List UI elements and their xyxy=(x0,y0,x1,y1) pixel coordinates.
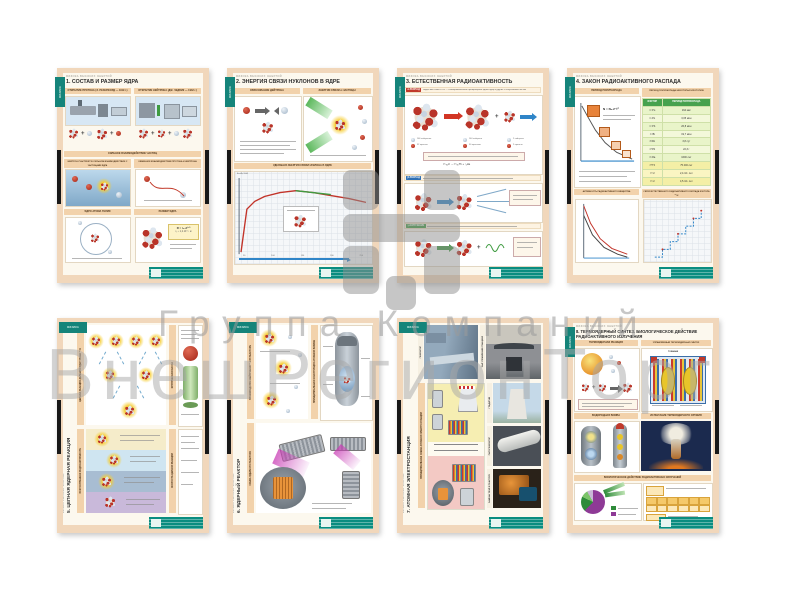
edge-bar-left xyxy=(57,150,61,204)
cylinder xyxy=(183,366,198,400)
publisher-logo xyxy=(659,267,713,279)
bomb-casing-2 xyxy=(613,424,627,468)
gamma-diagram: + xyxy=(404,231,543,267)
thermonuclear-reaction-diagram: + xyxy=(574,348,640,412)
turbine-coil-2 xyxy=(452,464,476,482)
poster-title-line2: РАДИОАКТИВНОГО ИЗЛУЧЕНИЯ xyxy=(576,334,713,339)
deuteron-diagram xyxy=(234,96,302,162)
publisher-logo xyxy=(319,517,373,529)
publisher-logo xyxy=(659,517,713,529)
exchange-interaction-diagram xyxy=(135,169,201,207)
tokamak-diagram: ТОКАМАК xyxy=(641,348,713,412)
section-neutron-production: ПРОИЗВОДСТВО НЕЙТРОНОВ ²³⁵U В РЕАКТОРЕ xyxy=(247,325,254,419)
table-value-row xyxy=(646,505,710,512)
table-header-row xyxy=(646,497,710,505)
publisher-logo xyxy=(149,267,203,279)
turbine-coil-1 xyxy=(448,420,468,435)
pion-exchange-curve xyxy=(148,178,188,202)
photo-label-control-room: ЗАЛ УПРАВЛЕНИЯ СТАНЦИЕЙ xyxy=(480,325,485,379)
edge-bar-right xyxy=(205,400,209,454)
section-reaction-speed: СКОРОСТЬ ЦЕПНОЙ РЕАКЦИИ xyxy=(169,429,176,513)
radius-formula-box: R = r₀·A¹ᐟ³ r₀ ≈ 1,2·10⁻¹⁵ м xyxy=(168,224,199,240)
helium-atom-diagram xyxy=(65,217,131,263)
alpha-binding-diagram xyxy=(303,96,373,162)
publisher-logo xyxy=(489,267,543,279)
poster-title: 4. ЗАКОН РАДИОАКТИВНОГО РАСПАДА xyxy=(576,79,713,85)
series-label: ФИЗИКА ВЫСОКИХ ЭНЕРГИЙ xyxy=(403,343,405,513)
photo-cooling-tower xyxy=(493,383,541,423)
section-halflife: ПЕРИОД ПОЛУРАСПАДА xyxy=(574,88,639,94)
photo-fuel-replacement xyxy=(493,469,541,508)
physics-series-tab: ФИЗИКА xyxy=(399,322,427,333)
alpha-decay-definition: α-РАСПАД РАДИОАКТИВНОСТЬ — самопроизволь… xyxy=(404,87,541,93)
binding-energy-chart: Eсв/A, МэВ 50 100 150 200 250 xyxy=(234,171,373,265)
photo-steam-generator xyxy=(493,426,541,466)
publisher-logo xyxy=(319,267,373,279)
uranium-sphere xyxy=(183,346,198,361)
neutron-apparatus xyxy=(135,96,201,126)
reactor-schema-diagram xyxy=(256,423,371,513)
nucleus-size-diagram: R = r₀·A¹ᐟ³ r₀ ≈ 1,2·10⁻¹⁵ м xyxy=(135,217,201,263)
photo-label-gradirnya: ГРАДИРНЯ xyxy=(487,383,492,423)
section-neutron: ОТКРЫТИЕ НЕЙТРОНА (ДЖ. ЧЕДВИК — 1932 г.) xyxy=(134,88,201,94)
radiation-pie-chart xyxy=(574,483,642,521)
section-hydrogen-bomb: ВОДОРОДНАЯ БОМБА xyxy=(574,413,638,419)
atomic-bomb-diagram xyxy=(320,325,373,421)
photo-control-room xyxy=(486,325,541,379)
edge-bar-left xyxy=(227,150,231,204)
alpha-equation: ²³⁸₉₂U → ²³⁴₉₀Th + ⁴₂He xyxy=(443,163,470,166)
decay-formula: N = N₀·2⁻ᵗ⁄ᵀ xyxy=(603,107,619,111)
isotope-halflife-table: ИЗОТОППЕРИОД ПОЛУРАСПАДА ²¹⁴Po164 мкс ²¹… xyxy=(642,98,711,186)
reaction-speed-formulas xyxy=(178,429,203,515)
chain-reaction-tree xyxy=(86,325,166,425)
section-proton: ОТКРЫТИЕ ПРОТОНА (Э. РЕЗЕРФОРД — 1919 г.… xyxy=(64,88,131,94)
section-decay-series: СЕРИЯ ЕСТЕСТВЕННОГО РАДИОАКТИВНОГО РАСПА… xyxy=(642,189,711,198)
section-strong-interaction: СИЛЬНОЕ ВЗАИМОДЕЙСТВИЕ ЧАСТИЦ xyxy=(64,151,201,157)
tokamak-label: ТОКАМАК xyxy=(668,351,678,353)
artificial-radioactivity-bands xyxy=(86,429,166,513)
publisher-logo xyxy=(149,517,203,529)
nucleus-inset xyxy=(283,206,319,232)
cooling-tower-sketch xyxy=(458,388,478,412)
poster-title: 5. ЦЕПНАЯ ЯДЕРНАЯ РЕАКЦИЯ xyxy=(67,343,72,513)
physics-series-tab: ФИЗИКА xyxy=(565,77,575,107)
section-alpha: ЭНЕРГИЯ СВЯЗИ α-ЧАСТИЦЫ xyxy=(303,88,371,94)
beta-decay-diagram xyxy=(404,183,543,223)
fuel-cylinder-vertical xyxy=(342,471,360,499)
poster-title: 6. ЯДЕРНЫЙ РЕАКТОР xyxy=(237,363,242,513)
pie-graphic xyxy=(581,490,605,514)
activity-curves xyxy=(579,202,633,260)
poster-3-radioaktivnost: ФИЗИКА ФИЗИКА ВЫСОКИХ ЭНЕРГИЙ 3. ЕСТЕСТВ… xyxy=(397,68,549,283)
reactor-oval xyxy=(432,480,454,506)
photo-mushroom-cloud xyxy=(641,421,711,471)
photo-generator xyxy=(424,325,478,379)
section-weapon-test: ИСПЫТАНИЕ ТЕРМОЯДЕРНОГО ОРУЖИЯ xyxy=(641,413,711,419)
poster-7-aes: ФИЗИКА ФИЗИКА ВЫСОКИХ ЭНЕРГИЙ 7. АТОМНАЯ… xyxy=(397,318,549,533)
poster-1-sostav-yadra: ФИЗИКА ФИЗИКА ВЫСОКИХ ЭНЕРГИЙ 1. СОСТАВ … xyxy=(57,68,209,283)
edge-bar-left xyxy=(397,150,401,204)
physics-series-tab: ФИЗИКА xyxy=(395,77,405,107)
x-axis xyxy=(239,258,349,260)
section-biological-effect: БИОЛОГИЧЕСКОЕ ДЕЙСТВИЕ РАДИОАКТИВНЫХ ИЗЛ… xyxy=(574,475,711,481)
sample-square xyxy=(587,105,600,117)
tokamak-cross-section xyxy=(650,356,706,404)
edge-bar-right xyxy=(545,400,549,454)
edge-bar-right xyxy=(715,400,719,454)
poster-6-yaderny-reaktor: ФИЗИКА ФИЗИКА ВЫСОКИХ ЭНЕРГИЙ 6. ЯДЕРНЫЙ… xyxy=(227,318,379,533)
edge-bar-right xyxy=(375,150,379,204)
section-aes-schema: ПРИНЦИПИАЛЬНАЯ СХЕМА АТОМНОЙ ЭЛЕКТРОСТАН… xyxy=(418,383,425,508)
photon-wave xyxy=(485,240,509,256)
subsection-strong-a: НЕЙТРОН УЧАСТВУЕТ В СИЛЬНОМ ВЗАИМОДЕЙСТВ… xyxy=(64,159,131,168)
section-binding-graph: УДЕЛЬНАЯ ЭНЕРГИЯ СВЯЗИ НУКЛОНА В ЯДРЕ xyxy=(234,163,371,169)
alpha-decay-diagram: + 146 нейтронов 92 протона 144 нейтрона … xyxy=(404,95,543,175)
physics-series-tab: ФИЗИКА xyxy=(59,322,87,333)
dose-table xyxy=(643,483,713,521)
subsection-strong-b: ОБМЕННОЕ ВЗАИМОДЕЙСТВИЕ ПРОТОНА И НЕЙТРО… xyxy=(134,159,201,168)
edge-bar-right xyxy=(205,150,209,204)
strong-interaction-diagram xyxy=(65,169,131,207)
activity-chart xyxy=(575,199,639,263)
edge-bar-left xyxy=(567,150,571,204)
decay-series-stairs xyxy=(648,201,708,261)
section-size: РАЗМЕР ЯДРА xyxy=(134,209,201,215)
reaction-formula-box xyxy=(578,399,638,410)
reactor-vessel xyxy=(260,467,306,509)
gamma-definition: γ-ИЗЛУЧЕНИЕ xyxy=(404,223,541,229)
edge-bar-right xyxy=(545,150,549,204)
poster-4-zakon-raspada: ФИЗИКА ФИЗИКА ВЫСОКИХ ЭНЕРГИЙ 4. ЗАКОН Р… xyxy=(567,68,719,283)
neutron-production-diagram xyxy=(256,325,308,419)
section-critical-mass: КРИТИЧЕСКАЯ МАССА xyxy=(169,325,176,425)
edge-bar-left xyxy=(567,400,571,454)
x-tick-labels: 50 100 150 200 250 xyxy=(243,255,363,257)
hydrogen-bomb-diagrams xyxy=(574,421,640,473)
poster-5-cepnaya-reakciya: ФИЗИКА ФИЗИКА ВЫСОКИХ ЭНЕРГИЙ 5. ЦЕПНАЯ … xyxy=(57,318,209,533)
series-label: ФИЗИКА ВЫСОКИХ ЭНЕРГИЙ xyxy=(233,343,235,513)
proton-apparatus xyxy=(65,96,131,126)
poster-title: 2. ЭНЕРГИЯ СВЯЗИ НУКЛОНОВ В ЯДРЕ xyxy=(236,79,373,85)
poster-title-line1: 8. ТЕРМОЯДЕРНЫЙ СИНТЕЗ. БИОЛОГИЧЕСКОЕ ДЕ… xyxy=(576,329,713,334)
section-chain-reaction: ЦЕПНАЯ РЕАКЦИЯ ДЕЛЕНИЯ ЯДЕР УРАНА ²³⁵U xyxy=(77,325,84,425)
poster-title: 1. СОСТАВ И РАЗМЕР ЯДРА xyxy=(66,79,203,85)
physics-series-tab: ФИЗИКА xyxy=(229,322,257,333)
edge-bar-left xyxy=(397,400,401,454)
product-collage: ФИЗИКА ФИЗИКА ВЫСОКИХ ЭНЕРГИЙ 1. СОСТАВ … xyxy=(0,0,800,600)
edge-bar-right xyxy=(375,400,379,454)
section-artificial-radioactivity: ИСКУССТВЕННАЯ РАДИОАКТИВНОСТЬ xyxy=(77,429,84,513)
poster-2-energiya-svyazi: ФИЗИКА ФИЗИКА ВЫСОКИХ ЭНЕРГИЙ 2. ЭНЕРГИЯ… xyxy=(227,68,379,283)
sun-graphic xyxy=(581,353,603,375)
section-thermonuclear-reaction: ТЕРМОЯДЕРНАЯ РЕАКЦИЯ xyxy=(574,340,638,346)
poster-title: 7. АТОМНАЯ ЭЛЕКТРОСТАНЦИЯ xyxy=(407,353,412,513)
photo-label-generator: ГЕНЕРАТОР xyxy=(418,325,423,379)
edge-bar-left xyxy=(57,400,61,454)
photo-label-parogenerator: ПАРОГЕНЕРАТОР xyxy=(487,426,492,466)
poster-title: 3. ЕСТЕСТВЕННАЯ РАДИОАКТИВНОСТЬ xyxy=(406,79,543,85)
section-helium: ЯДРО АТОМА ГЕЛИЯ xyxy=(64,209,131,215)
publisher-logo xyxy=(489,517,543,529)
section-reactor-schema: СХЕМА ЯДЕРНОГО РЕАКТОРА xyxy=(247,423,254,513)
bomb-casing-1 xyxy=(581,426,601,466)
edge-bar-right xyxy=(715,150,719,204)
section-bomb-design: ПРИНЦИПИАЛЬНАЯ КОНСТРУКЦИЯ АТОМНОЙ БОМБЫ xyxy=(311,325,318,419)
photo-label-tvel: ЗАМЕНА ТВЭЛ В РЕАКТОРЕ xyxy=(487,469,492,508)
section-activity: АКТИВНОСТЬ РАДИОАКТИВНОГО ВЕЩЕСТВА xyxy=(574,189,639,195)
section-isotope-table: ПЕРИОД ПОЛУРАСПАДА НЕКОТОРЫХ ИЗОТОПОВ xyxy=(642,88,711,97)
physics-series-tab: ФИЗИКА xyxy=(565,327,575,357)
poster-8-termoyaderny-sintez: ФИЗИКА ФИЗИКА ВЫСОКИХ ЭНЕРГИЙ 8. ТЕРМОЯД… xyxy=(567,318,719,533)
beta-decay-definition: β-РАСПАД xyxy=(404,175,541,181)
x-axis-arrow xyxy=(347,258,351,262)
section-deuteron: ОБРАЗОВАНИЕ ДЕЙТРОНА xyxy=(234,88,300,94)
physics-series-tab: ФИЗИКА xyxy=(225,77,235,107)
section-controlled-fusion: УПРАВЛЯЕМЫЙ ТЕРМОЯДЕРНЫЙ СИНТЕЗ xyxy=(641,340,711,346)
halflife-graph: N = N₀·2⁻ᵗ⁄ᵀ xyxy=(574,96,641,188)
caption-box xyxy=(423,152,525,161)
critical-mass-diagram xyxy=(178,325,203,427)
physics-series-tab: ФИЗИКА xyxy=(55,77,65,107)
edge-bar-left xyxy=(227,400,231,454)
series-label: ФИЗИКА ВЫСОКИХ ЭНЕРГИЙ xyxy=(63,343,65,513)
decay-series-chart xyxy=(643,199,712,263)
aes-schema-diagram xyxy=(427,383,485,510)
